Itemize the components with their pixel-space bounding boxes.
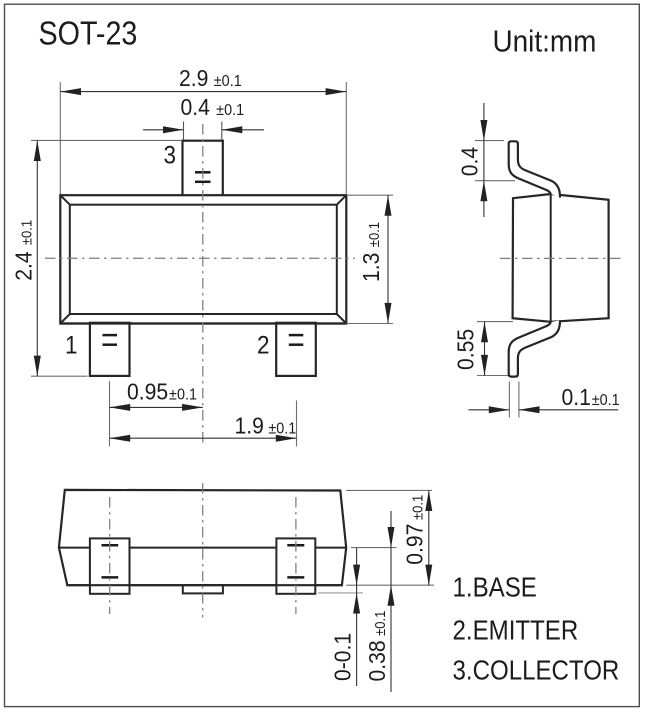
- svg-text:1.BASE: 1.BASE: [453, 571, 537, 603]
- svg-text:0-0.1: 0-0.1: [329, 633, 355, 681]
- svg-text:0.55: 0.55: [452, 329, 478, 370]
- svg-text:2: 2: [257, 331, 270, 359]
- svg-text:SOT-23: SOT-23: [39, 15, 138, 52]
- svg-text:0.4: 0.4: [457, 147, 483, 176]
- svg-text:2.EMITTER: 2.EMITTER: [453, 614, 579, 646]
- svg-text:3.COLLECTOR: 3.COLLECTOR: [453, 654, 620, 686]
- svg-text:3: 3: [163, 141, 176, 169]
- svg-text:1: 1: [65, 331, 78, 359]
- svg-text:Unit:mm: Unit:mm: [493, 24, 597, 59]
